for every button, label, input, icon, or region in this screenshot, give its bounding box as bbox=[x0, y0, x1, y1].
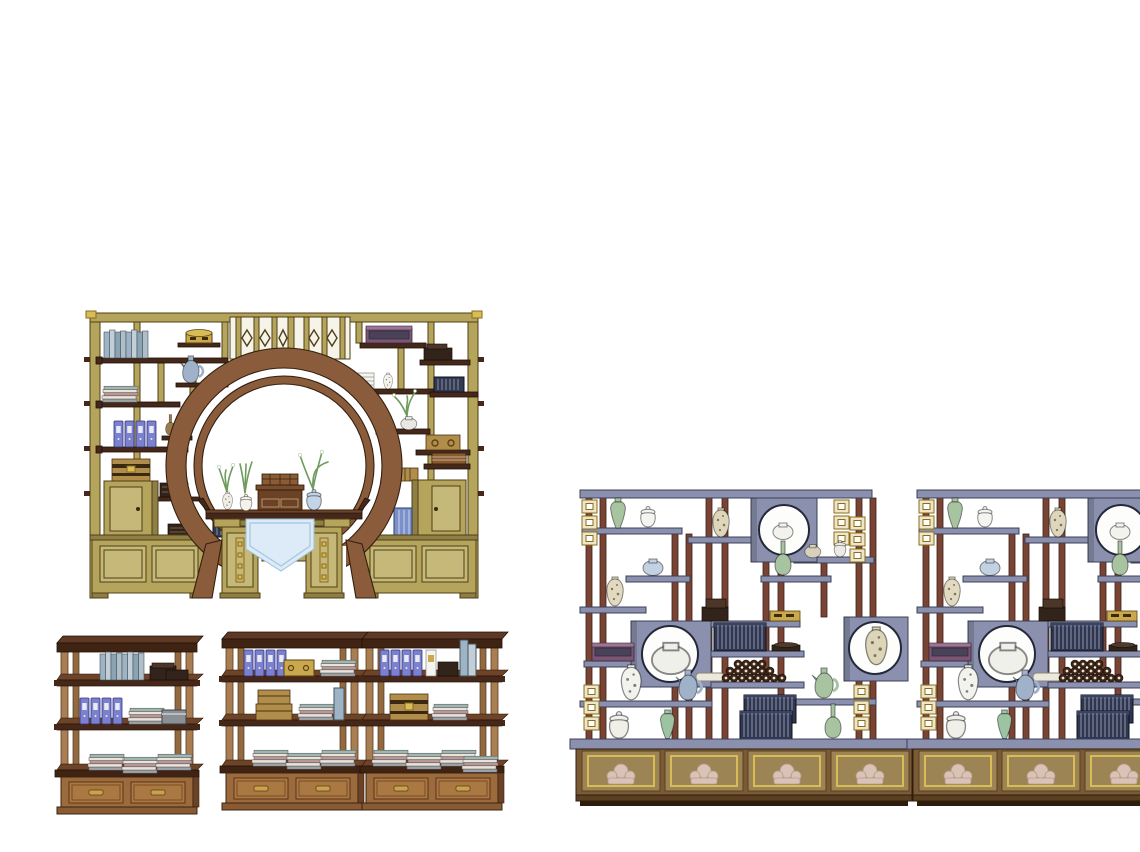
illustration-canvas bbox=[0, 0, 1140, 852]
mid-cabinet-right bbox=[412, 480, 466, 537]
bottom-cabinet-right bbox=[360, 535, 478, 598]
book-stack bbox=[286, 753, 322, 769]
white-pot bbox=[223, 492, 233, 509]
rack-frame bbox=[219, 632, 368, 810]
books bbox=[100, 652, 144, 680]
dark-boxes bbox=[424, 344, 452, 360]
corner-bracket bbox=[472, 311, 482, 318]
wooden-chest bbox=[112, 459, 150, 481]
book-rack-3 bbox=[359, 632, 508, 810]
furniture-illustration bbox=[0, 0, 1140, 852]
purple-painting-box bbox=[366, 326, 412, 343]
wooden-chest bbox=[390, 694, 428, 720]
dark-box bbox=[438, 662, 458, 676]
book-stack bbox=[298, 704, 334, 720]
book-stack bbox=[128, 708, 164, 724]
book-stack bbox=[372, 750, 408, 766]
book-stack bbox=[122, 757, 158, 773]
mirror-stand-box bbox=[256, 474, 304, 510]
gold-chests bbox=[256, 690, 292, 720]
moon-gate-bookcase bbox=[84, 311, 484, 598]
desk-objects bbox=[217, 450, 328, 511]
bottom-cabinet-left bbox=[90, 535, 208, 598]
book-stack bbox=[320, 750, 356, 766]
ring-chest bbox=[426, 435, 460, 450]
brown-books bbox=[432, 453, 466, 464]
book-stack bbox=[320, 660, 356, 676]
blue-white-jar bbox=[307, 490, 321, 511]
book-stack bbox=[102, 386, 138, 402]
blue-books bbox=[394, 508, 412, 537]
grey-box bbox=[162, 710, 186, 724]
corner-bracket bbox=[86, 311, 96, 318]
book-stack bbox=[252, 750, 288, 766]
cream-binder bbox=[426, 650, 436, 676]
book-stack bbox=[432, 704, 468, 720]
tall-book bbox=[334, 688, 344, 720]
curio-shelf-2 bbox=[907, 490, 1140, 806]
white-pot bbox=[240, 494, 252, 510]
tall-books bbox=[460, 640, 476, 676]
gold-box bbox=[284, 660, 314, 676]
books bbox=[104, 330, 148, 358]
potted-plant bbox=[392, 389, 416, 429]
book-stack bbox=[462, 756, 498, 772]
book-rack-1 bbox=[54, 636, 203, 814]
white-vase bbox=[384, 373, 393, 389]
dark-boxes bbox=[150, 663, 188, 680]
mid-cabinet-left bbox=[104, 481, 158, 537]
navy-books bbox=[434, 377, 464, 392]
book-rack-2 bbox=[219, 632, 368, 810]
book-stack bbox=[156, 754, 192, 770]
curio-shelf-1 bbox=[570, 490, 918, 806]
gold-cylinder-box bbox=[186, 330, 212, 344]
book-stack bbox=[88, 754, 124, 770]
book-stack bbox=[406, 753, 442, 769]
